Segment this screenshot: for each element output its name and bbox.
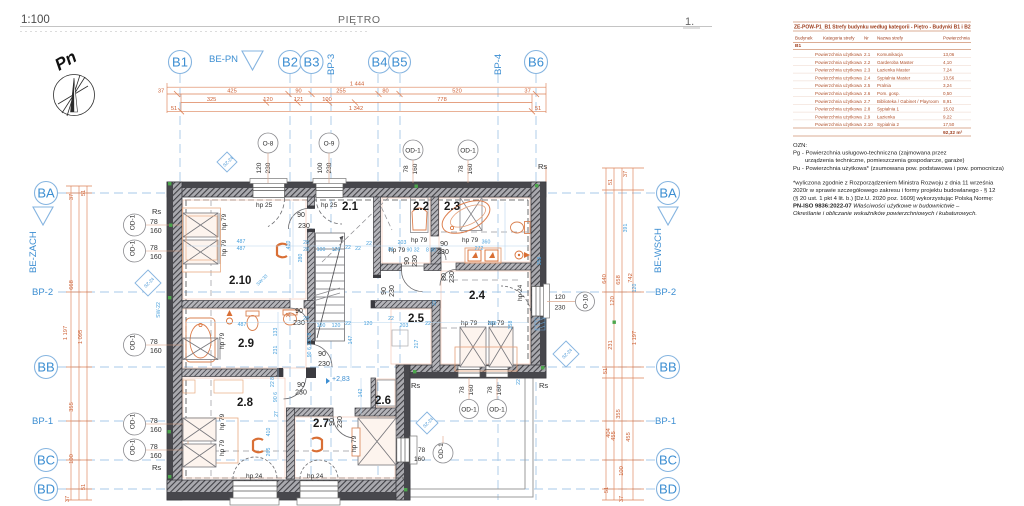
svg-text:37: 37 bbox=[623, 171, 629, 177]
svg-text:37: 37 bbox=[524, 89, 530, 95]
svg-text:Powierzchnia użytkowa: Powierzchnia użytkowa bbox=[815, 68, 862, 73]
svg-text:hp 79: hp 79 bbox=[219, 439, 226, 456]
svg-text:BA: BA bbox=[659, 186, 677, 201]
svg-text:OD-1: OD-1 bbox=[489, 407, 505, 414]
svg-text:1 197: 1 197 bbox=[63, 326, 69, 340]
svg-text:Rs: Rs bbox=[539, 381, 548, 390]
svg-text:90: 90 bbox=[295, 89, 301, 95]
svg-text:230: 230 bbox=[437, 249, 449, 256]
svg-text:OD-1: OD-1 bbox=[460, 148, 476, 155]
svg-text:51: 51 bbox=[603, 368, 609, 374]
svg-text:PN-ISO 9836:2022-07 Właściwośc: PN-ISO 9836:2022-07 Właściwości użytkowe… bbox=[793, 203, 960, 209]
svg-text:Powierzchnia użytkowa: Powierzchnia użytkowa bbox=[815, 75, 862, 80]
svg-text:22: 22 bbox=[355, 246, 361, 252]
svg-text:160: 160 bbox=[150, 228, 162, 235]
svg-text:90 6: 90 6 bbox=[273, 392, 279, 402]
svg-text:147: 147 bbox=[348, 336, 354, 345]
svg-text:90: 90 bbox=[295, 308, 303, 315]
svg-text:2.5: 2.5 bbox=[864, 83, 871, 88]
svg-text:hp 79: hp 79 bbox=[461, 320, 478, 327]
svg-text:hp 79: hp 79 bbox=[219, 413, 226, 430]
svg-text:90: 90 bbox=[297, 212, 305, 219]
svg-text:325: 325 bbox=[207, 97, 217, 103]
svg-text:2.1: 2.1 bbox=[864, 52, 871, 57]
svg-text:51: 51 bbox=[608, 179, 614, 185]
svg-text:hp 79: hp 79 bbox=[411, 237, 428, 244]
svg-text:BP-4: BP-4 bbox=[493, 54, 504, 75]
svg-text:120: 120 bbox=[610, 296, 616, 306]
svg-text:487: 487 bbox=[237, 246, 246, 252]
svg-text:2.7: 2.7 bbox=[864, 99, 871, 104]
svg-text:160: 160 bbox=[414, 456, 425, 463]
svg-text:Powierzchnia użytkowa: Powierzchnia użytkowa bbox=[815, 60, 862, 65]
svg-text:92,32 m²: 92,32 m² bbox=[943, 130, 963, 136]
svg-text:90: 90 bbox=[440, 241, 448, 248]
svg-text:487: 487 bbox=[237, 239, 246, 245]
svg-text:230: 230 bbox=[295, 390, 307, 397]
svg-text:78: 78 bbox=[458, 165, 465, 173]
svg-text:2.4: 2.4 bbox=[864, 75, 871, 80]
svg-text:455: 455 bbox=[626, 432, 632, 442]
svg-text:Powierzchnia użytkowa: Powierzchnia użytkowa bbox=[815, 52, 862, 57]
svg-text:90: 90 bbox=[329, 418, 336, 426]
svg-text:hp 79: hp 79 bbox=[221, 239, 228, 256]
svg-text:90: 90 bbox=[381, 287, 388, 295]
svg-text:778: 778 bbox=[437, 97, 447, 103]
svg-text:+2,83: +2,83 bbox=[332, 376, 350, 383]
svg-text:2.9: 2.9 bbox=[238, 338, 254, 350]
svg-text:455: 455 bbox=[611, 431, 617, 441]
svg-text:22: 22 bbox=[432, 300, 438, 306]
svg-text:Budynek: Budynek bbox=[795, 36, 813, 41]
svg-text:7,24: 7,24 bbox=[943, 68, 952, 73]
svg-text:120: 120 bbox=[555, 294, 566, 301]
svg-text:2.8: 2.8 bbox=[237, 397, 254, 409]
svg-text:OZN:: OZN: bbox=[793, 143, 807, 149]
svg-text:O-9: O-9 bbox=[324, 141, 335, 148]
svg-text:255: 255 bbox=[336, 89, 346, 95]
svg-text:13,06: 13,06 bbox=[943, 52, 955, 57]
svg-text:2.3: 2.3 bbox=[864, 68, 871, 73]
svg-text:8,91: 8,91 bbox=[943, 99, 952, 104]
svg-text:391: 391 bbox=[623, 224, 629, 233]
svg-text:230: 230 bbox=[318, 361, 330, 368]
svg-text:160: 160 bbox=[150, 254, 162, 261]
svg-text:OD-1: OD-1 bbox=[405, 148, 421, 155]
svg-text:2.6: 2.6 bbox=[375, 395, 391, 407]
svg-text:9,22: 9,22 bbox=[943, 114, 952, 119]
svg-text:2.4: 2.4 bbox=[469, 290, 486, 302]
svg-text:358: 358 bbox=[508, 321, 514, 330]
svg-text:78: 78 bbox=[418, 447, 426, 454]
svg-text:OD-1: OD-1 bbox=[130, 413, 137, 429]
svg-text:Nazwa strefy: Nazwa strefy bbox=[877, 36, 904, 41]
svg-text:90: 90 bbox=[318, 351, 326, 358]
svg-text:28: 28 bbox=[303, 247, 309, 253]
svg-text:BP-2: BP-2 bbox=[655, 287, 676, 298]
svg-text:Garderoba Master: Garderoba Master bbox=[877, 60, 914, 65]
svg-text:22: 22 bbox=[516, 379, 522, 385]
svg-text:2.7: 2.7 bbox=[313, 418, 329, 430]
svg-text:ZE-POW-P1_B1 Strefy budynku we: ZE-POW-P1_B1 Strefy budynku według kateg… bbox=[794, 25, 971, 31]
svg-text:100: 100 bbox=[317, 247, 326, 253]
svg-text:B2: B2 bbox=[282, 55, 298, 70]
svg-text:Komunikacja: Komunikacja bbox=[877, 52, 903, 57]
svg-text:78: 78 bbox=[487, 386, 494, 394]
svg-text:410: 410 bbox=[266, 428, 272, 437]
svg-text:Rs: Rs bbox=[152, 207, 161, 216]
svg-text:hp 25: hp 25 bbox=[256, 202, 273, 209]
svg-text:Powierzchnia użytkowa: Powierzchnia użytkowa bbox=[815, 107, 862, 112]
svg-text:22: 22 bbox=[345, 245, 351, 251]
svg-text:231: 231 bbox=[608, 340, 614, 350]
svg-text:1:100: 1:100 bbox=[21, 14, 50, 26]
svg-text:2.9: 2.9 bbox=[864, 114, 871, 119]
svg-text:272: 272 bbox=[475, 246, 484, 252]
svg-text:22: 22 bbox=[345, 321, 351, 327]
svg-text:B3: B3 bbox=[304, 55, 320, 70]
svg-text:O-10: O-10 bbox=[583, 294, 590, 309]
svg-text:160: 160 bbox=[150, 453, 162, 460]
svg-text:487: 487 bbox=[238, 322, 247, 328]
svg-text:520: 520 bbox=[452, 89, 462, 95]
svg-text:121: 121 bbox=[294, 97, 304, 103]
svg-text:51: 51 bbox=[81, 484, 87, 490]
svg-text:203: 203 bbox=[400, 323, 409, 329]
svg-text:230: 230 bbox=[412, 255, 419, 267]
svg-text:78: 78 bbox=[403, 165, 410, 173]
svg-text:37: 37 bbox=[619, 496, 625, 502]
svg-text:13,56: 13,56 bbox=[943, 75, 955, 80]
svg-text:90 32: 90 32 bbox=[407, 248, 420, 254]
svg-text:100: 100 bbox=[322, 97, 332, 103]
svg-text:OD-1: OD-1 bbox=[130, 240, 137, 256]
svg-text:230: 230 bbox=[265, 162, 272, 173]
svg-text:BB: BB bbox=[37, 360, 54, 375]
svg-text:Powierzchnia użytkowa: Powierzchnia użytkowa bbox=[815, 114, 862, 119]
svg-text:BD: BD bbox=[659, 482, 677, 497]
svg-text:Łazienka Master: Łazienka Master bbox=[877, 68, 911, 73]
svg-text:355: 355 bbox=[616, 409, 622, 419]
svg-text:265: 265 bbox=[266, 448, 272, 457]
svg-text:425: 425 bbox=[227, 89, 237, 95]
svg-text:90: 90 bbox=[297, 382, 305, 389]
svg-text:51: 51 bbox=[535, 106, 541, 112]
svg-text:BP-3: BP-3 bbox=[326, 54, 337, 75]
svg-text:Kategoria strefy: Kategoria strefy bbox=[823, 36, 855, 41]
svg-text:BB: BB bbox=[659, 360, 676, 375]
svg-text:Sypialnia 2: Sypialnia 2 bbox=[877, 122, 900, 127]
svg-text:Biblioteka / Gabinet / Playroo: Biblioteka / Gabinet / Playroom bbox=[877, 99, 939, 104]
svg-text:28: 28 bbox=[303, 316, 309, 322]
svg-text:OD-1: OD-1 bbox=[438, 443, 445, 459]
svg-text:231: 231 bbox=[273, 346, 279, 355]
svg-text:2.6: 2.6 bbox=[864, 91, 871, 96]
svg-text:1 197: 1 197 bbox=[632, 331, 638, 345]
svg-text:1.: 1. bbox=[685, 16, 694, 28]
svg-text:OD-1: OD-1 bbox=[130, 439, 137, 455]
svg-text:Rs: Rs bbox=[538, 162, 547, 171]
svg-text:80: 80 bbox=[382, 89, 388, 95]
svg-text:hp 79: hp 79 bbox=[351, 435, 358, 452]
svg-text:Powierzchnia użytkowa: Powierzchnia użytkowa bbox=[815, 99, 862, 104]
svg-text:Łazienka: Łazienka bbox=[877, 114, 896, 119]
svg-text:B4: B4 bbox=[372, 55, 388, 70]
svg-text:90 6 230 8: 90 6 230 8 bbox=[307, 333, 313, 358]
svg-text:78: 78 bbox=[459, 386, 466, 394]
svg-text:Powierzchnia: Powierzchnia bbox=[943, 36, 970, 41]
svg-text:Rs: Rs bbox=[152, 463, 161, 472]
svg-text:BC: BC bbox=[37, 453, 55, 468]
svg-text:2.10: 2.10 bbox=[229, 275, 251, 287]
svg-text:2020r w sprawie szczegółowego: 2020r w sprawie szczegółowego zakresu i … bbox=[793, 188, 995, 194]
svg-text:1 095: 1 095 bbox=[78, 330, 84, 344]
svg-text:142: 142 bbox=[358, 389, 364, 398]
svg-text:3,24: 3,24 bbox=[943, 83, 952, 88]
svg-text:37: 37 bbox=[158, 89, 164, 95]
svg-text:hp 25: hp 25 bbox=[321, 202, 338, 209]
svg-text:hp 24: hp 24 bbox=[517, 284, 524, 301]
svg-text:*wyliczona zgodnie z Rozporząd: *wyliczona zgodnie z Rozporządzeniem Min… bbox=[793, 181, 994, 187]
svg-text:17,50: 17,50 bbox=[943, 122, 955, 127]
svg-text:Sypialnia 1: Sypialnia 1 bbox=[877, 107, 900, 112]
svg-text:Określanie i obliczanie wskaźn: Określanie i obliczanie wskaźników powie… bbox=[793, 211, 977, 217]
svg-text:Pu - Powierzchnia użytkowa* (z: Pu - Powierzchnia użytkowa* (zsumowana p… bbox=[793, 166, 1004, 172]
svg-text:2.1: 2.1 bbox=[342, 201, 359, 213]
svg-text:360: 360 bbox=[488, 321, 497, 327]
svg-text:120: 120 bbox=[332, 247, 341, 253]
svg-text:B6: B6 bbox=[528, 55, 544, 70]
svg-text:hp 79: hp 79 bbox=[221, 213, 228, 230]
svg-text:133: 133 bbox=[273, 328, 279, 337]
svg-text:217: 217 bbox=[414, 340, 420, 349]
svg-text:81: 81 bbox=[388, 247, 394, 253]
svg-text:51: 51 bbox=[81, 190, 87, 196]
svg-text:0,50: 0,50 bbox=[943, 91, 952, 96]
svg-text:BP-1: BP-1 bbox=[655, 416, 676, 427]
svg-text:BP-2: BP-2 bbox=[32, 287, 53, 298]
svg-text:Pom. gosp.: Pom. gosp. bbox=[877, 91, 900, 96]
svg-text:BD: BD bbox=[37, 482, 55, 497]
svg-text:BA: BA bbox=[37, 186, 55, 201]
svg-text:OD-1: OD-1 bbox=[130, 214, 137, 230]
svg-text:BE-ZACH: BE-ZACH bbox=[28, 231, 39, 273]
svg-text:230: 230 bbox=[449, 271, 456, 283]
svg-text:658: 658 bbox=[616, 275, 622, 285]
svg-text:51: 51 bbox=[604, 487, 610, 493]
svg-text:100: 100 bbox=[317, 162, 324, 173]
svg-text:O-8: O-8 bbox=[263, 141, 274, 148]
svg-text:230: 230 bbox=[326, 162, 333, 173]
svg-text:640: 640 bbox=[602, 274, 608, 284]
svg-text:B1: B1 bbox=[172, 55, 188, 70]
svg-text:28: 28 bbox=[303, 240, 309, 246]
svg-text:hp 24: hp 24 bbox=[307, 473, 324, 480]
svg-text:Pralnia: Pralnia bbox=[877, 83, 892, 88]
svg-text:hp 24: hp 24 bbox=[246, 473, 263, 480]
svg-text:22: 22 bbox=[388, 316, 394, 322]
svg-text:2.10: 2.10 bbox=[864, 122, 873, 127]
svg-text:100: 100 bbox=[619, 466, 625, 476]
svg-text:100: 100 bbox=[69, 454, 75, 464]
svg-text:51: 51 bbox=[171, 106, 177, 112]
svg-text:B5: B5 bbox=[392, 55, 408, 70]
svg-text:OD-1: OD-1 bbox=[461, 407, 477, 414]
svg-text:22 8: 22 8 bbox=[270, 377, 276, 387]
svg-text:230: 230 bbox=[337, 416, 344, 428]
svg-text:2.8: 2.8 bbox=[864, 107, 871, 112]
svg-text:668: 668 bbox=[69, 280, 75, 290]
svg-text:120: 120 bbox=[332, 323, 341, 329]
svg-text:Powierzchnia użytkowa: Powierzchnia użytkowa bbox=[815, 91, 862, 96]
svg-text:120: 120 bbox=[263, 97, 273, 103]
svg-text:SW-22: SW-22 bbox=[156, 302, 162, 318]
svg-text:37: 37 bbox=[65, 496, 71, 502]
svg-text:Powierzchnia użytkowa: Powierzchnia użytkowa bbox=[815, 83, 862, 88]
svg-text:BC: BC bbox=[659, 453, 677, 468]
svg-text:BP-1: BP-1 bbox=[32, 416, 53, 427]
svg-text:Nr: Nr bbox=[864, 36, 869, 41]
svg-text:355: 355 bbox=[69, 402, 75, 412]
svg-text:2.5: 2.5 bbox=[408, 313, 425, 325]
svg-text:PIĘTRO: PIĘTRO bbox=[338, 14, 381, 26]
svg-text:120: 120 bbox=[364, 321, 373, 327]
svg-text:230: 230 bbox=[298, 223, 310, 230]
svg-text:120: 120 bbox=[632, 284, 638, 293]
svg-text:90: 90 bbox=[404, 257, 411, 265]
svg-text:1 444: 1 444 bbox=[350, 82, 364, 88]
svg-text:22: 22 bbox=[425, 321, 431, 327]
svg-text:4,10: 4,10 bbox=[943, 60, 952, 65]
svg-text:Sypialnia Master: Sypialnia Master bbox=[877, 75, 911, 80]
svg-text:2.2: 2.2 bbox=[413, 201, 429, 213]
svg-text:1 342: 1 342 bbox=[349, 106, 363, 112]
svg-text:37: 37 bbox=[69, 194, 75, 200]
svg-text:OD-1: OD-1 bbox=[130, 334, 137, 350]
svg-text:160: 160 bbox=[150, 348, 162, 355]
svg-text:hp 79: hp 79 bbox=[219, 332, 226, 349]
svg-text:203: 203 bbox=[398, 240, 407, 246]
svg-text:Pg - Powierzchnia usługowo-tec: Pg - Powierzchnia usługowo-techniczna (z… bbox=[793, 151, 947, 157]
svg-text:358: 358 bbox=[537, 257, 543, 266]
svg-text:BE-PN: BE-PN bbox=[209, 54, 238, 65]
svg-text:360: 360 bbox=[482, 240, 491, 246]
svg-text:Powierzchnia użytkowa: Powierzchnia użytkowa bbox=[815, 122, 862, 127]
svg-text:27: 27 bbox=[274, 411, 280, 417]
svg-text:100: 100 bbox=[317, 323, 326, 329]
svg-text:15,02: 15,02 bbox=[943, 107, 955, 112]
svg-text:8 80: 8 80 bbox=[426, 248, 436, 254]
svg-text:hp 79: hp 79 bbox=[462, 237, 479, 244]
svg-text:410: 410 bbox=[286, 241, 292, 250]
svg-text:Rs: Rs bbox=[411, 381, 420, 390]
svg-text:(§ 20 ust. 1 pkt 4 lit. b.) [D: (§ 20 ust. 1 pkt 4 lit. b.) [Dz.U. 2020 … bbox=[793, 196, 994, 202]
svg-text:230: 230 bbox=[389, 285, 396, 297]
svg-text:B1: B1 bbox=[795, 43, 801, 49]
svg-text:2.2: 2.2 bbox=[864, 60, 871, 65]
svg-text:22: 22 bbox=[366, 241, 372, 247]
svg-text:2.3: 2.3 bbox=[444, 201, 460, 213]
svg-text:urządzenia techniczne, pomiesz: urządzenia techniczne, pomieszczenia gos… bbox=[805, 158, 965, 164]
svg-text:230: 230 bbox=[555, 305, 566, 312]
svg-text:80: 80 bbox=[441, 273, 448, 281]
svg-text:280: 280 bbox=[298, 254, 304, 263]
svg-text:742: 742 bbox=[628, 273, 634, 283]
svg-text:120: 120 bbox=[256, 162, 263, 173]
svg-text:160: 160 bbox=[150, 427, 162, 434]
svg-text:BE-WSCH: BE-WSCH bbox=[653, 228, 664, 273]
